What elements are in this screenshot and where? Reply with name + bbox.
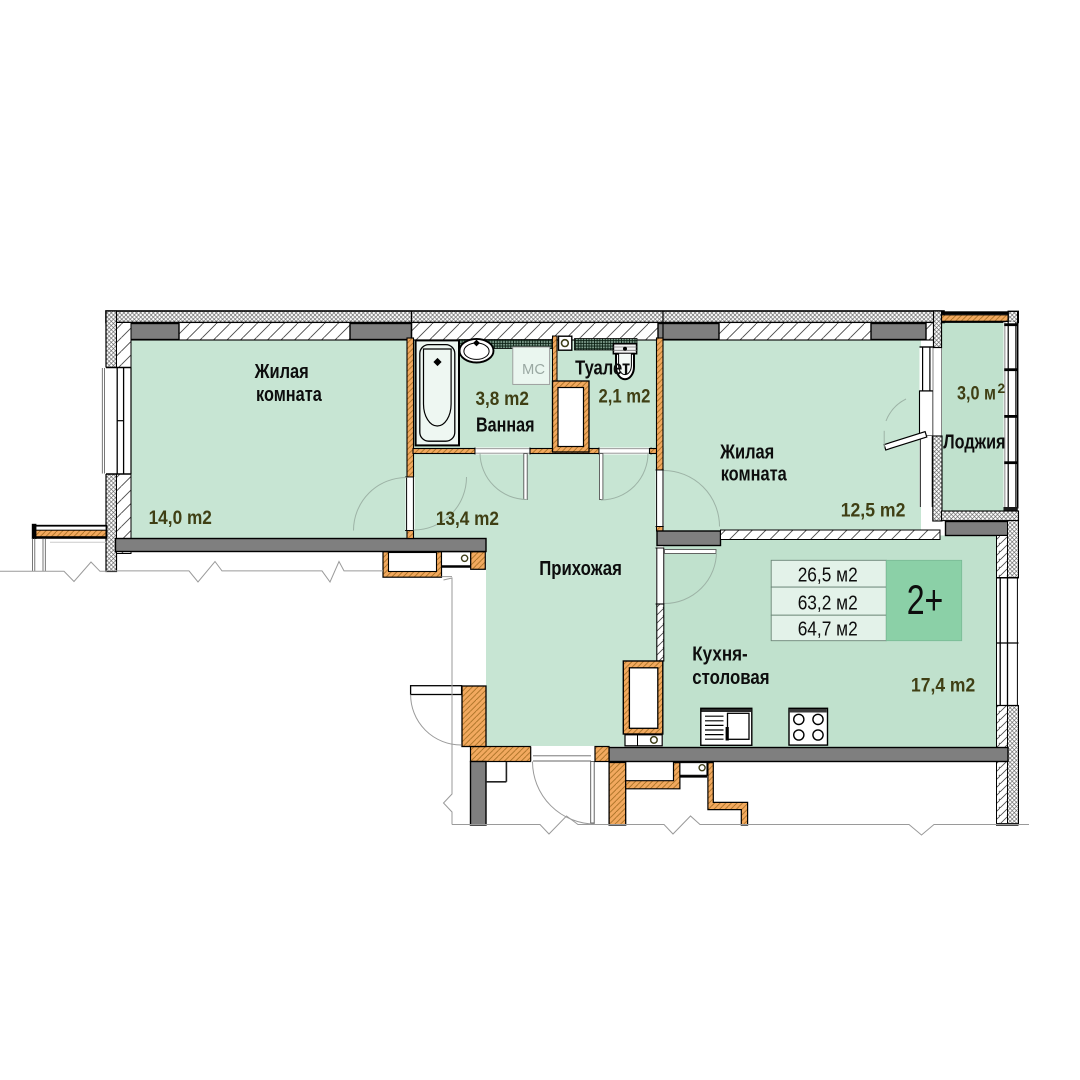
svg-text:3,0 м: 3,0 м [957, 383, 996, 404]
svg-text:МС: МС [522, 361, 545, 378]
svg-text:Прихожая: Прихожая [539, 557, 622, 580]
svg-text:63,2 м2: 63,2 м2 [798, 592, 858, 614]
svg-text:2: 2 [998, 381, 1006, 396]
svg-text:Лоджия: Лоджия [943, 431, 1005, 454]
svg-text:14,0 m2: 14,0 m2 [149, 508, 212, 529]
svg-text:Туалет: Туалет [575, 356, 630, 379]
svg-text:2,1 m2: 2,1 m2 [599, 386, 651, 407]
svg-text:комната: комната [721, 462, 788, 485]
svg-text:17,4 m2: 17,4 m2 [911, 676, 975, 697]
svg-text:Жилая: Жилая [719, 440, 774, 463]
svg-text:12,5 m2: 12,5 m2 [841, 501, 906, 522]
svg-text:Жилая: Жилая [254, 360, 309, 383]
svg-text:13,4 m2: 13,4 m2 [436, 509, 499, 530]
svg-text:Кухня-: Кухня- [692, 643, 747, 666]
svg-text:2+: 2+ [907, 576, 944, 623]
svg-text:Ванная: Ванная [476, 413, 535, 436]
svg-text:64,7 м2: 64,7 м2 [798, 619, 858, 641]
svg-text:комната: комната [256, 383, 322, 406]
svg-text:3,8 m2: 3,8 m2 [476, 389, 529, 410]
svg-text:столовая: столовая [692, 666, 769, 689]
svg-text:26,5 м2: 26,5 м2 [798, 565, 858, 587]
